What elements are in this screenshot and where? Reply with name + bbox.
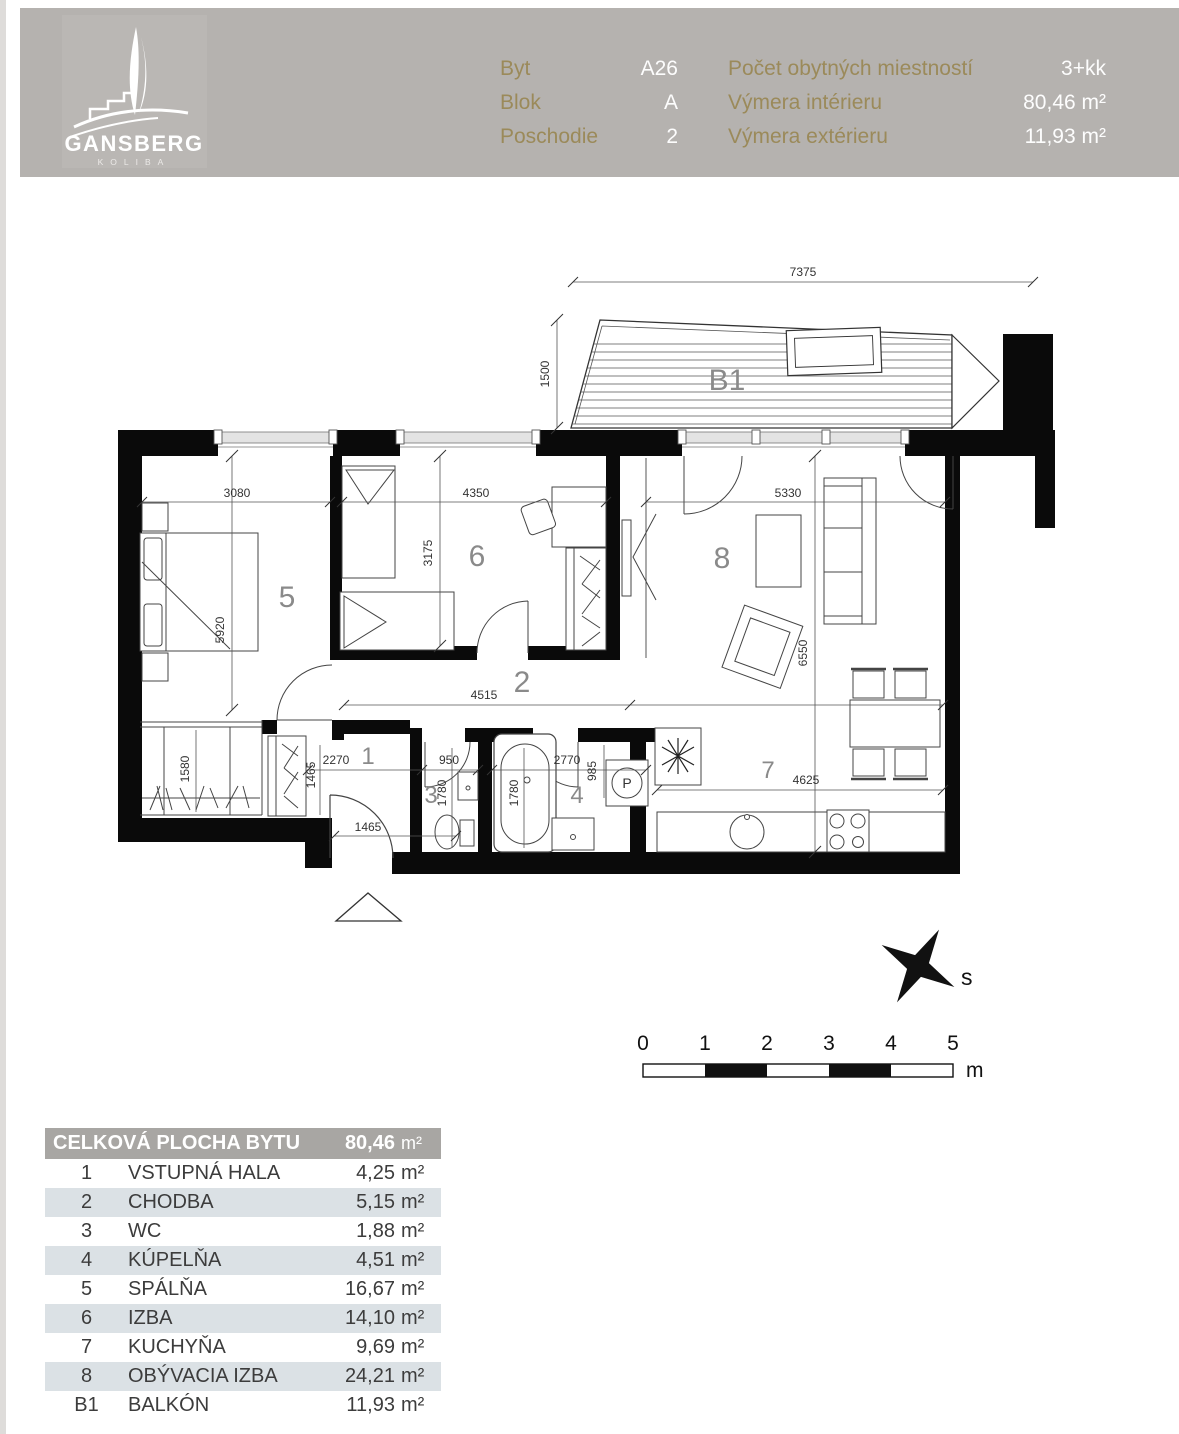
row-value: 24,21: [325, 1365, 395, 1388]
scale-tick: 1: [699, 1032, 711, 1055]
compass-icon: s: [861, 909, 976, 1024]
floor-plan-drawing: B1: [0, 228, 1179, 1113]
room6-door: [477, 601, 528, 653]
row-unit: m²: [395, 1365, 441, 1388]
hall-closet: [268, 736, 306, 816]
field-value: 2: [666, 120, 678, 154]
pillow: [144, 538, 162, 580]
row-unit: m²: [395, 1162, 441, 1185]
row-value: 14,10: [325, 1307, 395, 1330]
row-num: 6: [45, 1307, 128, 1330]
row-value: 4,25: [325, 1162, 395, 1185]
row-name: BALKÓN: [128, 1394, 325, 1417]
field-label: Byt: [500, 52, 530, 86]
dim-hall: 2270: [323, 753, 350, 767]
row-unit: m²: [395, 1336, 441, 1359]
room-7-label: 7: [761, 757, 774, 784]
dim-kitchen: 4625: [793, 773, 820, 787]
table-row: B1 BALKÓN 11,93 m²: [45, 1391, 441, 1420]
row-unit: m²: [395, 1249, 441, 1272]
row-value: 5,15: [325, 1191, 395, 1214]
field-label: Počet obytných miestností: [728, 52, 973, 86]
dim-r8-w: 5330: [775, 486, 802, 500]
scale-unit: m: [966, 1059, 984, 1082]
tv-angle: [633, 514, 656, 600]
field-interior-area: Výmera intérieru 80,46 m²: [728, 86, 1106, 120]
table-row: 2 CHODBA 5,15 m²: [45, 1188, 441, 1217]
room-4-label: 4: [570, 782, 583, 809]
washer-label: P: [622, 775, 631, 791]
dim-r5-w: 3080: [224, 486, 251, 500]
scale-tick: 3: [823, 1032, 835, 1055]
pillow: [144, 604, 162, 646]
dim-balcony-depth: 1500: [538, 360, 552, 387]
entrance-marker-icon: [336, 893, 401, 921]
counter: [657, 812, 945, 852]
field-rooms-count: Počet obytných miestností 3+kk: [728, 52, 1106, 86]
scale-tick: 2: [761, 1032, 773, 1055]
dim-hall-depth: 1465: [304, 761, 318, 788]
table-row: 4 KÚPELŇA 4,51 m²: [45, 1246, 441, 1275]
row-num: 8: [45, 1365, 128, 1388]
dim-closet: 1580: [178, 755, 192, 782]
row-unit: m²: [395, 1394, 441, 1417]
field-poschodie: Poschodie 2: [500, 120, 678, 154]
row-value: 9,69: [325, 1336, 395, 1359]
field-label: Blok: [500, 86, 541, 120]
closet-lines: [140, 720, 262, 815]
balcony-label: B1: [709, 364, 746, 397]
row-num: 5: [45, 1278, 128, 1301]
dim-r5-h: 5920: [213, 616, 227, 643]
balcony: B1: [560, 320, 1053, 430]
table-row: 1 VSTUPNÁ HALA 4,25 m²: [45, 1159, 441, 1188]
dim-r8-h: 6550: [796, 639, 810, 666]
room-3-label: 3: [424, 782, 437, 809]
total-area-value: 80,46: [325, 1132, 395, 1155]
brand-name: GANSBERG: [64, 131, 203, 156]
row-num: 3: [45, 1220, 128, 1243]
table-title: CELKOVÁ PLOCHA BYTU: [45, 1132, 325, 1155]
armchair: [722, 605, 803, 688]
tv: [622, 520, 631, 596]
dim-bath-w: 2770: [554, 753, 581, 767]
nightstand: [142, 653, 168, 681]
dim-r6-h: 3175: [421, 539, 435, 566]
cistern: [460, 820, 474, 846]
table-row: 6 IZBA 14,10 m²: [45, 1304, 441, 1333]
wardrobe: [566, 548, 606, 650]
table-rows: 1 VSTUPNÁ HALA 4,25 m² 2 CHODBA 5,15 m² …: [45, 1159, 441, 1420]
field-value: 11,93 m²: [1025, 120, 1106, 154]
balcony-wall: [1003, 334, 1053, 430]
row-unit: m²: [395, 1220, 441, 1243]
compass-south-label: s: [961, 964, 973, 990]
row-unit: m²: [395, 1278, 441, 1301]
balcony-skylight: [786, 327, 882, 375]
row-num: B1: [45, 1394, 128, 1417]
row-name: SPÁLŇA: [128, 1278, 325, 1301]
brand-logo: GANSBERG KOLIBA: [62, 15, 207, 168]
unit-fields: Byt A26 Blok A Poschodie 2: [500, 52, 678, 154]
balcony-corner: [952, 335, 999, 428]
row-unit: m²: [395, 1191, 441, 1214]
coffee-table: [756, 515, 801, 587]
dim-r6-w: 4350: [463, 486, 490, 500]
room-5-furniture: [140, 503, 262, 815]
row-value: 1,88: [325, 1220, 395, 1243]
field-value: 80,46 m²: [1023, 86, 1106, 120]
field-blok: Blok A: [500, 86, 678, 120]
row-name: KÚPELŇA: [128, 1249, 325, 1272]
dining-table: [850, 700, 940, 747]
scale-tick: 4: [885, 1032, 897, 1055]
dim-hall-bottom: 1465: [355, 820, 382, 834]
floorplan-page: GANSBERG KOLIBA Byt A26 Blok A Poschodie…: [0, 0, 1179, 1434]
row-value: 16,67: [325, 1278, 395, 1301]
field-value: 3+kk: [1061, 52, 1106, 86]
row-unit: m²: [395, 1307, 441, 1330]
field-label: Výmera extérieru: [728, 120, 888, 154]
field-value: A26: [641, 52, 678, 86]
sofa: [824, 478, 876, 624]
table-row: 5 SPÁLŇA 16,67 m²: [45, 1275, 441, 1304]
table-row: 7 KUCHYŇA 9,69 m²: [45, 1333, 441, 1362]
room-5-label: 5: [279, 581, 296, 614]
area-fields: Počet obytných miestností 3+kk Výmera in…: [728, 52, 1106, 154]
row-num: 4: [45, 1249, 128, 1272]
table-header: CELKOVÁ PLOCHA BYTU 80,46 m²: [45, 1128, 441, 1159]
scale-tick: 5: [947, 1032, 959, 1055]
floor-plan: B1: [0, 228, 1179, 1113]
row-num: 7: [45, 1336, 128, 1359]
row-name: KUCHYŇA: [128, 1336, 325, 1359]
row-value: 11,93: [325, 1394, 395, 1417]
room-1-label: 1: [361, 743, 374, 770]
header: GANSBERG KOLIBA Byt A26 Blok A Poschodie…: [20, 8, 1179, 177]
room-6-label: 6: [469, 540, 486, 573]
row-name: OBÝVACIA IZBA: [128, 1365, 325, 1388]
desk: [552, 487, 606, 547]
room-8-label: 8: [714, 542, 731, 575]
toilet: [435, 815, 459, 849]
row-num: 1: [45, 1162, 128, 1185]
row-num: 2: [45, 1191, 128, 1214]
bedroom-door: [277, 665, 332, 720]
row-name: IZBA: [128, 1307, 325, 1330]
sink: [730, 815, 764, 849]
dim-bath-side: 985: [585, 761, 599, 781]
dim-bath-depth: 1780: [507, 779, 521, 806]
balcony-door: [684, 456, 742, 514]
field-label: Poschodie: [500, 120, 598, 154]
total-area-unit: m²: [395, 1133, 441, 1154]
field-label: Výmera intérieru: [728, 86, 882, 120]
scale-bar: 0 1 2 3 4 5 m: [637, 1032, 983, 1082]
dim-wc-w: 950: [439, 753, 459, 767]
field-byt: Byt A26: [500, 52, 678, 86]
field-value: A: [664, 86, 678, 120]
table-row: 8 OBÝVACIA IZBA 24,21 m²: [45, 1362, 441, 1391]
dim-corridor: 4515: [471, 688, 498, 702]
row-name: VSTUPNÁ HALA: [128, 1162, 325, 1185]
scale-tick: 0: [637, 1032, 649, 1055]
dim-top: 7375: [790, 265, 817, 279]
area-table: CELKOVÁ PLOCHA BYTU 80,46 m² 1 VSTUPNÁ H…: [45, 1128, 441, 1420]
table-row: 3 WC 1,88 m²: [45, 1217, 441, 1246]
chair: [520, 498, 557, 536]
field-exterior-area: Výmera extérieru 11,93 m²: [728, 120, 1106, 154]
row-value: 4,51: [325, 1249, 395, 1272]
row-name: CHODBA: [128, 1191, 325, 1214]
gansberg-logo-icon: GANSBERG KOLIBA: [62, 15, 207, 168]
brand-sub: KOLIBA: [98, 157, 171, 167]
room-2-label: 2: [514, 666, 531, 699]
nightstand: [142, 503, 168, 531]
row-name: WC: [128, 1220, 325, 1243]
